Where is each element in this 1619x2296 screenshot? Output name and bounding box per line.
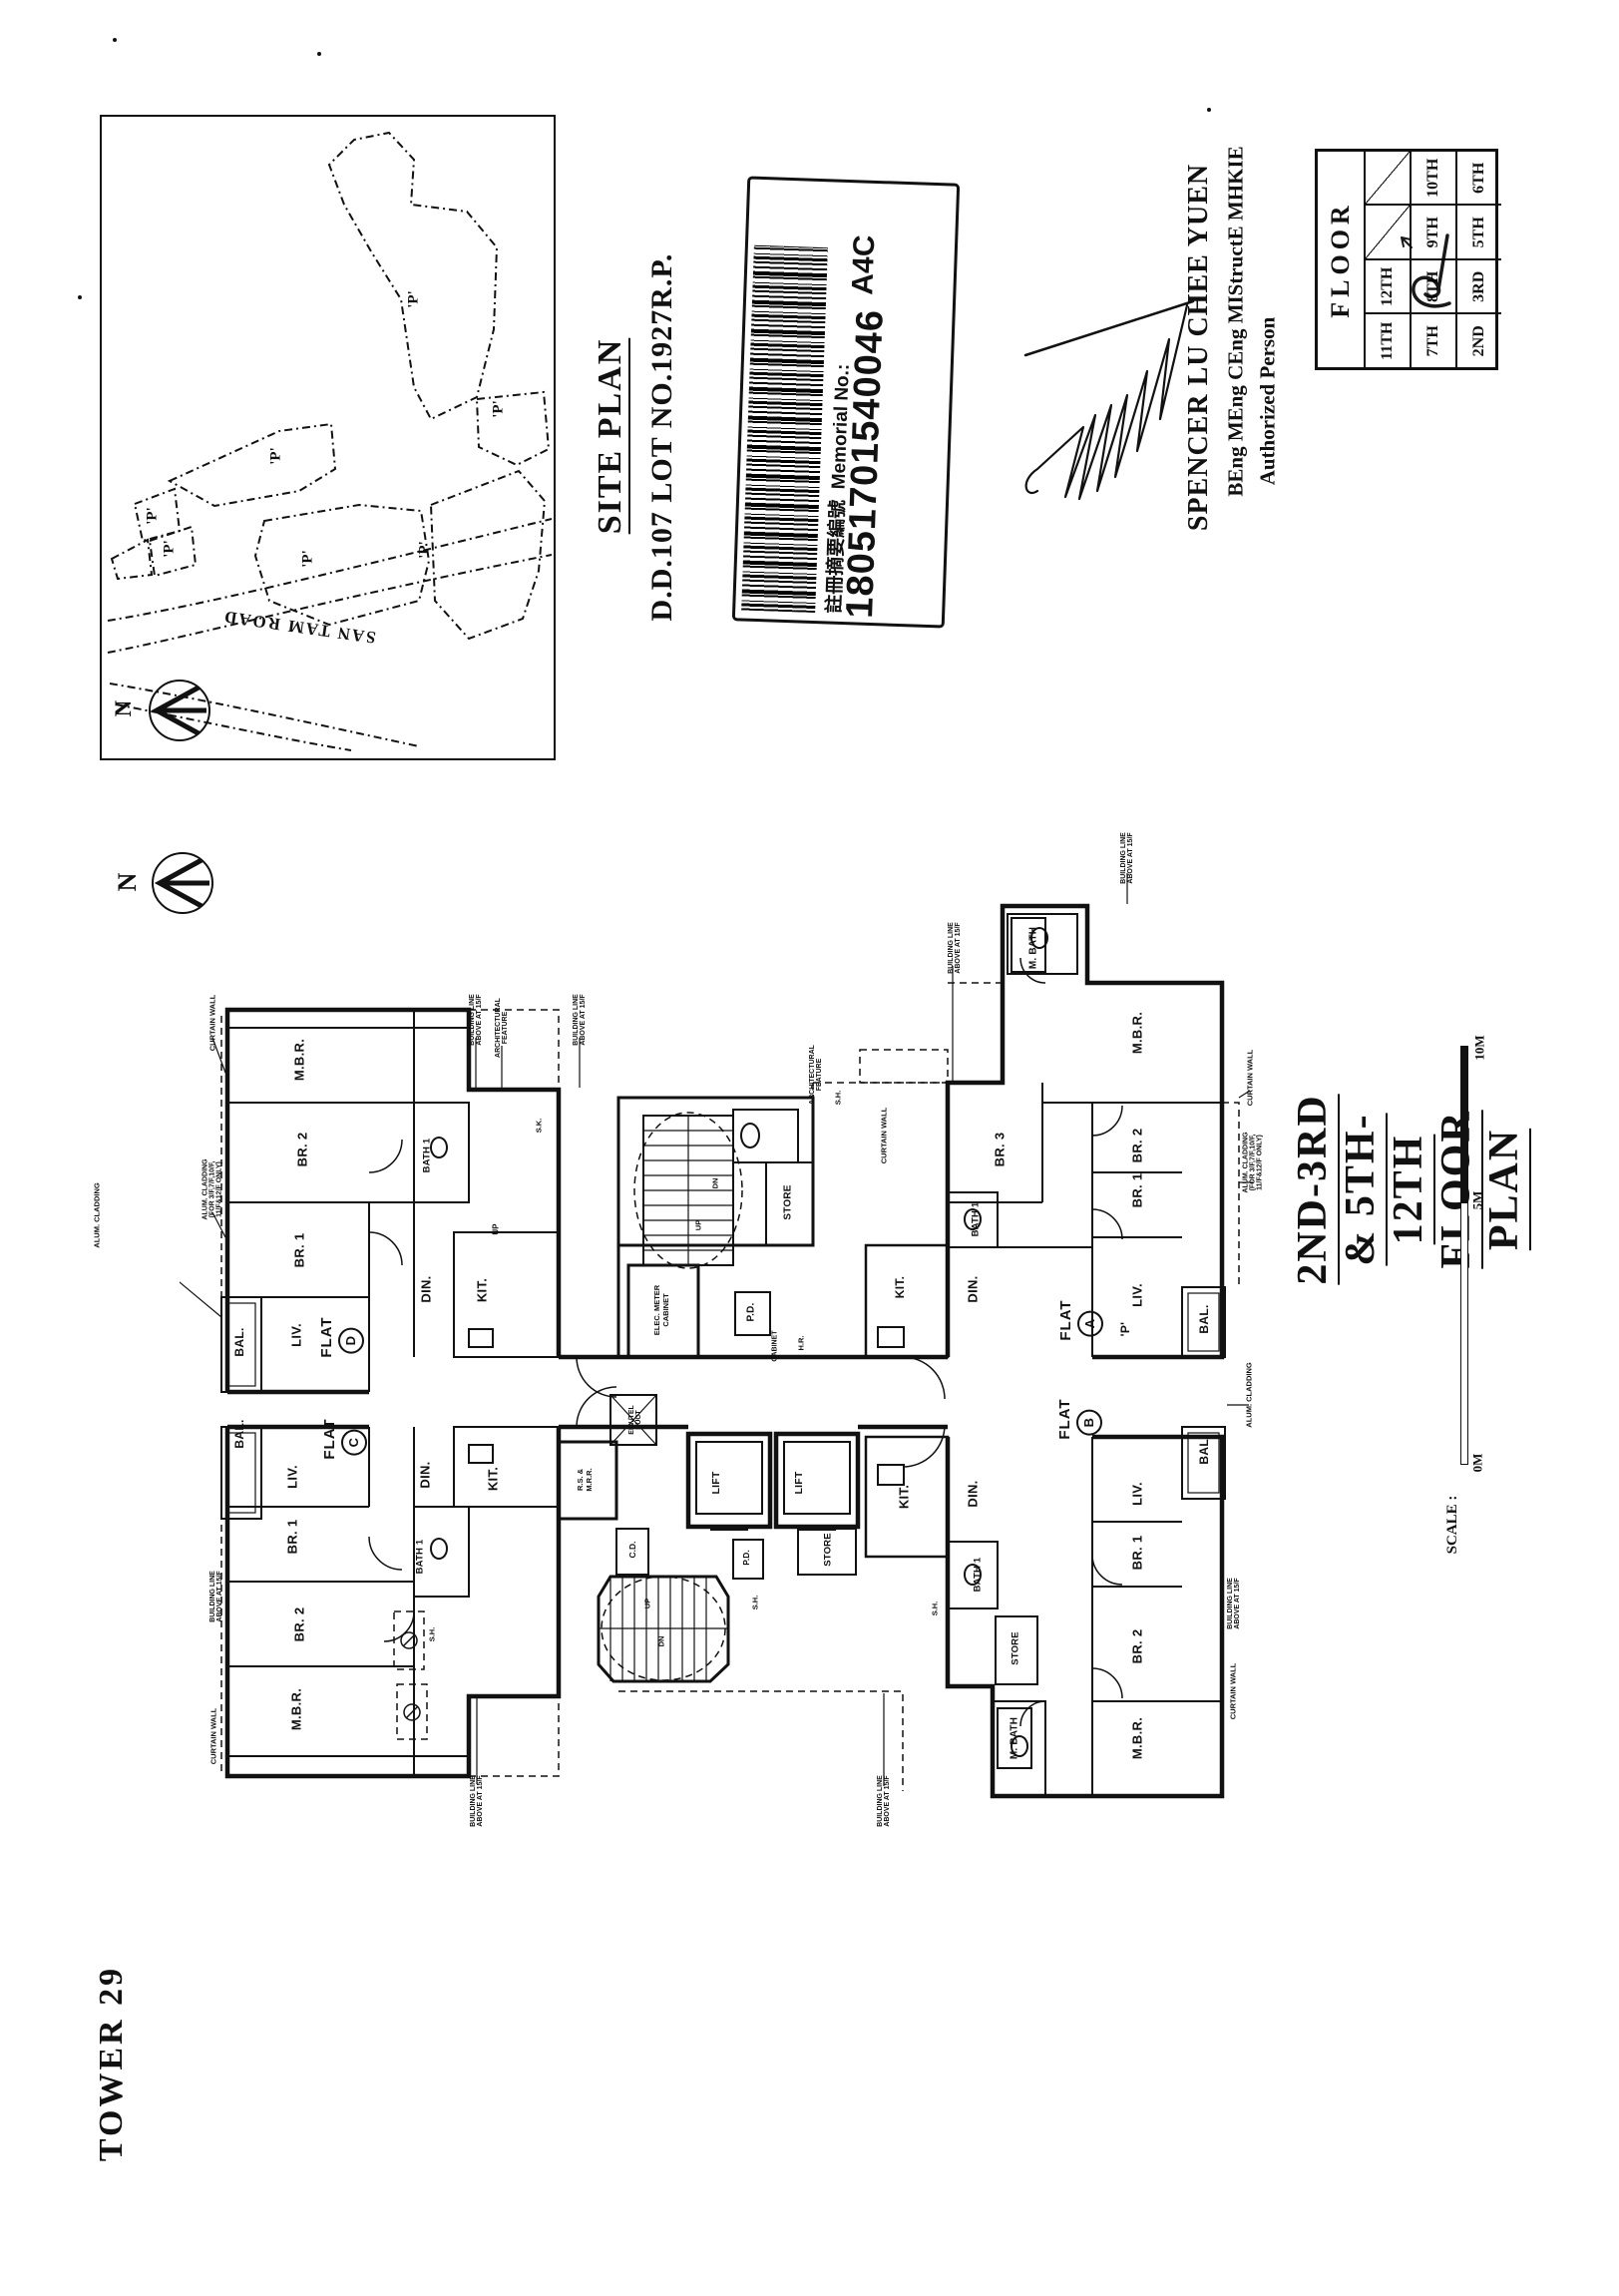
site-plan-lot: D.D.107 LOT NO.1927R.P. bbox=[645, 253, 679, 622]
parcel-label: 'P' bbox=[417, 541, 434, 559]
flat-word: FLAT bbox=[1057, 1299, 1074, 1340]
room-label: BAL. bbox=[1197, 1304, 1211, 1333]
room-label: BR. 2 bbox=[1130, 1129, 1145, 1163]
shaft-label: P.D. bbox=[741, 1550, 751, 1565]
room-label: BR. 2 bbox=[292, 1607, 307, 1642]
flat-letter: A bbox=[1077, 1311, 1103, 1337]
north-arrow-icon bbox=[147, 678, 212, 743]
annotation-label: CURTAIN WALL bbox=[880, 1108, 889, 1164]
scale-bar-filled bbox=[1460, 1046, 1468, 1202]
room-label: M.B.R. bbox=[289, 1688, 304, 1730]
annotation-label: BUILDING LINE ABOVE AT 15/F bbox=[1227, 1578, 1241, 1629]
lift-label: LIFT bbox=[710, 1472, 722, 1495]
pen-tick-icon bbox=[1318, 152, 1495, 367]
room-label: DIN. bbox=[419, 1275, 434, 1302]
signatory-role: Authorized Person bbox=[1256, 317, 1281, 486]
parcel-label: 'P' bbox=[162, 540, 179, 558]
annotation-label: ALUM. CLADDING (FOR 3/F,7/F,10/F, 11/F&1… bbox=[202, 1158, 223, 1219]
room-label: M. BATH bbox=[1010, 1717, 1020, 1759]
fixture-label: S.H. bbox=[834, 1091, 843, 1106]
room-label: BAL. bbox=[1197, 1435, 1211, 1464]
room-label: R.S. & M.R.R. bbox=[576, 1468, 594, 1491]
flat-word: FLAT bbox=[321, 1418, 338, 1459]
room-label: M.B.R. bbox=[292, 1039, 307, 1081]
shaft-label: C.D. bbox=[627, 1542, 637, 1559]
flat-letter: D bbox=[338, 1328, 364, 1354]
annotation-label: CURTAIN WALL bbox=[209, 1708, 218, 1765]
parcel-label: 'P' bbox=[406, 290, 423, 308]
annotation-label: BUILDING LINE ABOVE AT 15/F bbox=[209, 1571, 223, 1622]
signatory-qualifications: BEng MEng CEng MIStructE MHKIE bbox=[1224, 146, 1249, 496]
scale-bar-open bbox=[1460, 1202, 1468, 1465]
annotation-label: BUILDING LINE ABOVE AT 15/F bbox=[877, 1775, 891, 1827]
room-label: BAL. bbox=[232, 1327, 246, 1356]
annotation-label: ALUM. CLADDING (FOR 3/F,7/F,10/F, 11/F&1… bbox=[1243, 1132, 1264, 1192]
room-label: BR. 1 bbox=[1130, 1173, 1145, 1208]
room-label: DIN. bbox=[966, 1275, 981, 1302]
room-label: ELEC. METER CABINET bbox=[652, 1285, 670, 1335]
annotation-label: BUILDING LINE ABOVE AT 15/F bbox=[469, 994, 483, 1046]
room-label: STORE bbox=[823, 1533, 834, 1567]
north-label: N bbox=[113, 873, 143, 892]
barcode-icon bbox=[741, 245, 828, 613]
flat-type-label: 'P' bbox=[1118, 1322, 1132, 1337]
annotation-label: BUILDING LINE ABOVE AT 15/F bbox=[470, 1775, 484, 1827]
memorial-sticker: 註冊摘要編號 Memorial No.: 18051701540046 A4C bbox=[732, 176, 960, 628]
room-label: LIV. bbox=[1130, 1482, 1145, 1506]
room-label: LIV. bbox=[285, 1465, 300, 1489]
parcel-label: 'P' bbox=[300, 550, 317, 568]
annotation-label: BUILDING LINE ABOVE AT 15/F bbox=[1120, 832, 1134, 884]
flat-letter: C bbox=[341, 1430, 367, 1456]
scan-speck bbox=[317, 52, 321, 56]
room-label: DIN. bbox=[966, 1480, 981, 1507]
fixture-label: CABINET bbox=[772, 1330, 779, 1361]
flat-word: FLAT bbox=[1056, 1398, 1073, 1439]
room-label: KIT. bbox=[897, 1485, 912, 1509]
annotation-label: ALUM. CLADDING bbox=[93, 1182, 102, 1247]
annotation-label: CURTAIN WALL bbox=[1229, 1663, 1238, 1720]
room-label: BR. 1 bbox=[292, 1233, 307, 1268]
stair-label: DN bbox=[657, 1636, 666, 1647]
room-label: BATH 1 bbox=[422, 1139, 433, 1173]
scale-tick-label: 5M bbox=[1469, 1191, 1484, 1210]
annotation-label: BUILDING LINE ABOVE AT 15/F bbox=[573, 994, 587, 1046]
scale-label: SCALE : bbox=[1444, 1496, 1462, 1555]
flat-label-c: FLAT C bbox=[321, 1418, 367, 1459]
scan-speck bbox=[113, 38, 117, 42]
tower-label: TOWER 29 bbox=[93, 1966, 131, 2161]
room-label: M.B.R. bbox=[1130, 1717, 1145, 1759]
stair-label: UP bbox=[694, 1220, 703, 1230]
room-label: BR. 3 bbox=[993, 1133, 1008, 1167]
annotation-label: ALUM. CLADDING bbox=[1245, 1362, 1254, 1427]
flat-label-a: FLAT A bbox=[1057, 1299, 1103, 1340]
room-label: BATH 1 bbox=[973, 1558, 984, 1593]
room-label: BAL. bbox=[232, 1419, 246, 1448]
room-label: KIT. bbox=[486, 1467, 501, 1491]
stair-label: DN bbox=[711, 1178, 720, 1189]
room-label: STORE bbox=[783, 1184, 794, 1219]
site-plan-parcels bbox=[100, 115, 552, 756]
room-label: BATH 1 bbox=[971, 1202, 982, 1237]
scan-speck bbox=[78, 295, 82, 299]
signatory-name: SPENCER LU CHEE YUEN bbox=[1183, 164, 1215, 531]
fixture-label: S.H. bbox=[428, 1627, 437, 1642]
floor-table: FLOOR 11TH 12TH 7TH 8TH 9TH 10TH 2ND 3RD… bbox=[1315, 149, 1498, 370]
sheet-title: 2ND-3RD & 5TH-12TH FLOOR PLAN bbox=[1289, 1085, 1528, 1295]
signature-scribble bbox=[1003, 230, 1202, 519]
annotation-label: ARCHITECTURAL FEATURE bbox=[809, 1045, 823, 1105]
fixture-label: H.R. bbox=[797, 1336, 806, 1351]
flat-letter: B bbox=[1076, 1410, 1102, 1436]
room-label: BR. 1 bbox=[285, 1520, 300, 1555]
memorial-number: 18051701540046 bbox=[839, 308, 893, 619]
room-label: BR. 1 bbox=[1130, 1536, 1145, 1571]
north-label: N bbox=[111, 700, 137, 717]
room-label: KIT. bbox=[475, 1278, 490, 1302]
annotation-label: ARCHITECTURAL FEATURE bbox=[495, 998, 509, 1058]
room-label: BR. 2 bbox=[295, 1133, 310, 1167]
shaft-label: ELV./TEL DUCT bbox=[628, 1405, 642, 1435]
fixture-label: S.H. bbox=[931, 1602, 940, 1616]
flat-label-b: FLAT B bbox=[1056, 1398, 1102, 1439]
room-label: DIN. bbox=[418, 1461, 433, 1488]
room-label: KIT. bbox=[893, 1276, 907, 1299]
fixture-label: S.H. bbox=[751, 1596, 760, 1610]
stair-label: UP bbox=[492, 1223, 501, 1234]
annotation-label: BUILDING LINE ABOVE AT 15/F bbox=[948, 922, 962, 974]
scan-speck bbox=[1207, 108, 1211, 112]
room-label: BR. 2 bbox=[1130, 1629, 1145, 1664]
site-plan-title: SITE PLAN bbox=[592, 338, 629, 535]
annotation-label: CURTAIN WALL bbox=[1246, 1050, 1255, 1107]
memorial-code: A4C bbox=[846, 234, 882, 295]
annotation-label: CURTAIN WALL bbox=[208, 995, 217, 1052]
room-label: P.D. bbox=[746, 1303, 757, 1322]
room-label: LIV. bbox=[289, 1323, 304, 1347]
parcel-label: 'P' bbox=[491, 400, 508, 418]
parcel-label: 'P' bbox=[268, 447, 285, 465]
parcel-label: 'P' bbox=[145, 507, 162, 525]
room-label: M. BATH bbox=[1028, 927, 1039, 969]
fixture-label: S.K. bbox=[535, 1119, 544, 1134]
flat-label-d: FLAT D bbox=[318, 1316, 364, 1357]
scale-tick-label: 10M bbox=[1471, 1035, 1486, 1060]
room-label: BATH 1 bbox=[415, 1540, 426, 1575]
scale-tick-label: 0M bbox=[1469, 1454, 1484, 1473]
room-label: STORE bbox=[1011, 1631, 1021, 1665]
room-label: LIV. bbox=[1130, 1283, 1145, 1307]
room-label: M.B.R. bbox=[1130, 1012, 1145, 1054]
flat-word: FLAT bbox=[318, 1316, 335, 1357]
lift-label: LIFT bbox=[793, 1472, 805, 1495]
stair-label: UP bbox=[643, 1599, 652, 1608]
